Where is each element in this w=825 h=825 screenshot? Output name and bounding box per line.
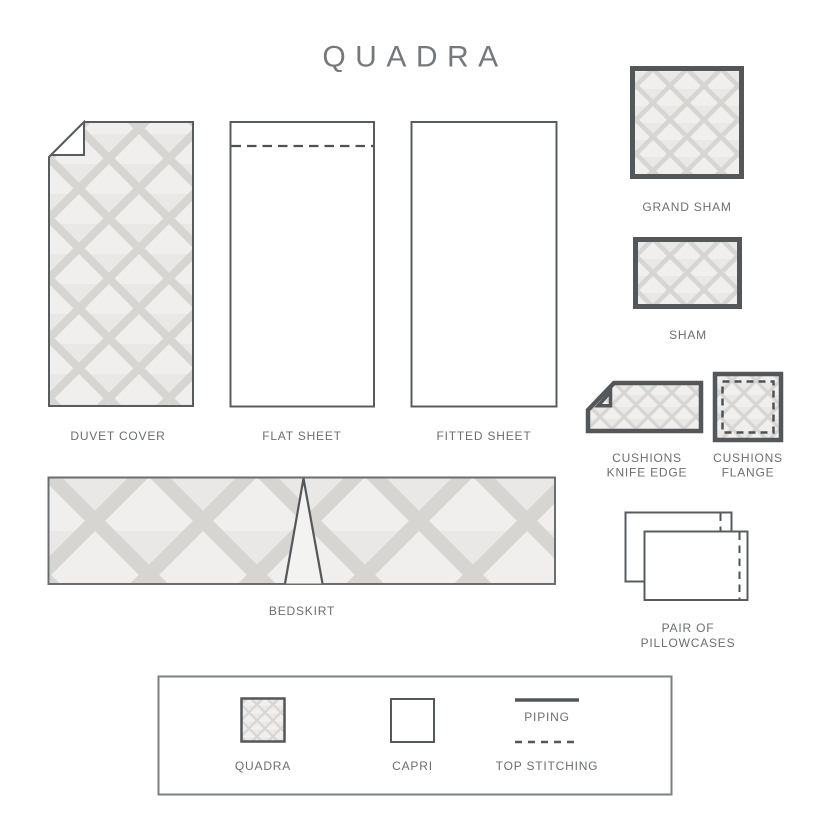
- svg-text:PIPING: PIPING: [524, 710, 569, 724]
- svg-text:GRAND SHAM: GRAND SHAM: [642, 200, 731, 214]
- svg-text:FITTED SHEET: FITTED SHEET: [437, 429, 532, 443]
- svg-text:TOP STITCHING: TOP STITCHING: [496, 759, 599, 773]
- svg-text:CAPRI: CAPRI: [392, 759, 433, 773]
- svg-text:PILLOWCASES: PILLOWCASES: [641, 636, 736, 650]
- svg-text:PAIR OF: PAIR OF: [662, 621, 715, 635]
- svg-text:FLANGE: FLANGE: [722, 466, 775, 480]
- svg-text:QUADRA: QUADRA: [322, 41, 507, 74]
- svg-text:CUSHIONS: CUSHIONS: [612, 451, 682, 465]
- svg-text:DUVET COVER: DUVET COVER: [70, 429, 165, 443]
- svg-text:FLAT SHEET: FLAT SHEET: [262, 429, 342, 443]
- svg-text:BEDSKIRT: BEDSKIRT: [269, 604, 335, 618]
- svg-text:QUADRA: QUADRA: [235, 759, 291, 773]
- svg-text:KNIFE EDGE: KNIFE EDGE: [607, 466, 688, 480]
- svg-text:CUSHIONS: CUSHIONS: [713, 451, 783, 465]
- svg-text:SHAM: SHAM: [669, 328, 707, 342]
